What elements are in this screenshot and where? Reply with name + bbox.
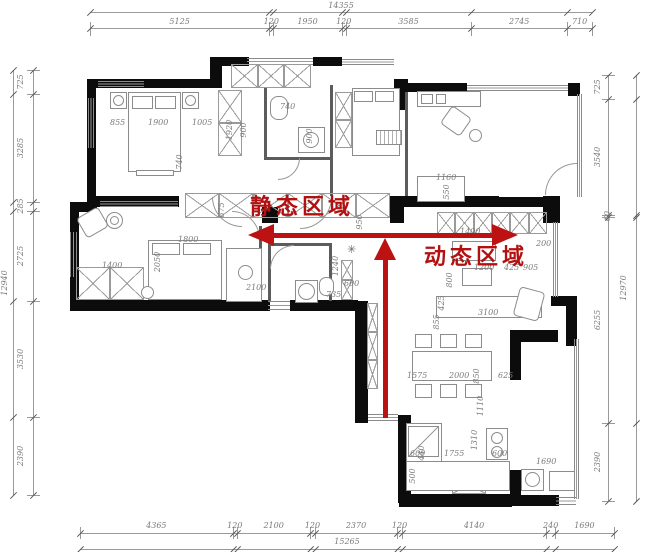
dim-slash bbox=[10, 492, 17, 499]
window-living-right bbox=[553, 222, 558, 297]
arrow-left-head bbox=[248, 224, 274, 246]
basin-bath2 bbox=[298, 283, 315, 300]
pillow bbox=[183, 243, 211, 255]
interior-dim: 440 bbox=[418, 445, 426, 460]
interior-dim: 1240 bbox=[332, 256, 340, 276]
dim-line bbox=[33, 70, 34, 495]
partition-bath2-top bbox=[268, 243, 332, 246]
interior-dim: 2100 bbox=[246, 284, 266, 292]
interior-dim: 855 bbox=[110, 119, 125, 127]
dynamic-zone-label: 动态区域 bbox=[424, 245, 528, 269]
dim-label: 2390 bbox=[594, 452, 602, 472]
chair bbox=[440, 384, 457, 398]
floor-plan: ✳ 51251201950120358527457101435543651202… bbox=[0, 0, 650, 552]
dim-label: 725 bbox=[594, 79, 602, 94]
dim-label: 285 bbox=[17, 199, 25, 214]
wardrobe-br3 bbox=[76, 267, 144, 300]
interior-dim: 735 bbox=[326, 291, 341, 299]
dim-line bbox=[80, 533, 614, 534]
dim-label: 4365 bbox=[146, 522, 166, 530]
dim-label: 1950 bbox=[297, 18, 317, 26]
door-arc bbox=[545, 163, 577, 195]
pillow bbox=[132, 96, 153, 109]
arrow-right-head bbox=[492, 224, 518, 246]
bench-br1 bbox=[136, 170, 174, 176]
interior-dim: 1920 bbox=[226, 120, 234, 140]
wall-bottom-right bbox=[510, 495, 559, 506]
shelf-br2 bbox=[335, 92, 352, 148]
dim-label: 3285 bbox=[17, 138, 25, 158]
wall-dining-top-right bbox=[510, 330, 558, 342]
interior-dim: 500 bbox=[409, 468, 417, 483]
box bbox=[421, 94, 433, 104]
interior-dim: 740 bbox=[176, 154, 184, 169]
interior-dim: 550 bbox=[443, 184, 451, 199]
interior-dim: 1400 bbox=[102, 262, 122, 270]
interior-dim: 900 bbox=[306, 128, 314, 143]
interior-dim: 2000 bbox=[449, 372, 469, 380]
window-study-top bbox=[467, 85, 568, 91]
cabinet-top bbox=[231, 64, 311, 88]
interior-dim: 1900 bbox=[148, 119, 168, 127]
dim-label: 3540 bbox=[594, 147, 602, 167]
partition-br2-left bbox=[330, 85, 333, 196]
dim-label: 3530 bbox=[17, 348, 25, 368]
sliding-door-br1 bbox=[100, 201, 178, 207]
lamp bbox=[113, 95, 124, 106]
arrow-up-head bbox=[374, 238, 396, 260]
window-study-right bbox=[577, 94, 582, 197]
interior-dim: 1005 bbox=[192, 119, 212, 127]
interior-dim: 800 bbox=[446, 272, 454, 287]
dim-label: 710 bbox=[572, 18, 587, 26]
window-br2-top bbox=[342, 59, 394, 65]
bench-br2 bbox=[376, 130, 402, 145]
interior-dim: 1160 bbox=[436, 174, 456, 182]
partition-bath2-left bbox=[268, 246, 271, 301]
dim-label: 1690 bbox=[574, 522, 594, 530]
interior-dim: 200 bbox=[536, 240, 551, 248]
cabinet-hall bbox=[367, 303, 378, 389]
dim-slash bbox=[589, 9, 596, 16]
cup bbox=[110, 216, 119, 225]
vertical-arrow-shaft bbox=[383, 256, 388, 418]
partition-bath1-left bbox=[264, 88, 267, 160]
balcony-cabinet bbox=[549, 471, 575, 491]
interior-dim: 600 bbox=[344, 280, 359, 288]
static-zone-label: 静态区域 bbox=[250, 195, 354, 219]
window-bath2-bottom bbox=[268, 301, 290, 310]
wall-living-top-right bbox=[497, 197, 545, 207]
interior-dim: 1310 bbox=[471, 430, 479, 450]
interior-dim: 675 bbox=[218, 202, 226, 217]
dim-line bbox=[636, 75, 637, 501]
dim-label: 2100 bbox=[263, 522, 283, 530]
dim-line bbox=[13, 70, 14, 495]
chair bbox=[440, 334, 457, 348]
interior-dim: 600 bbox=[492, 450, 507, 458]
interior-dim: 1755 bbox=[444, 450, 464, 458]
dim-total: 14355 bbox=[328, 2, 353, 10]
dim-total: 15265 bbox=[334, 538, 359, 546]
interior-dim: 855 bbox=[433, 314, 441, 329]
interior-dim: 2050 bbox=[154, 252, 162, 272]
dim-label: 2370 bbox=[346, 522, 366, 530]
armchair-study bbox=[440, 105, 472, 137]
dim-label: 2725 bbox=[17, 246, 25, 266]
chair bbox=[465, 334, 482, 348]
partition-study-left bbox=[405, 92, 408, 196]
stool-br3 bbox=[141, 286, 154, 299]
pillow bbox=[155, 96, 176, 109]
interior-dim: 950 bbox=[356, 214, 364, 229]
interior-dim: 740 bbox=[280, 103, 295, 111]
lamp bbox=[185, 95, 196, 106]
door-arc bbox=[270, 245, 294, 269]
dim-label: 2390 bbox=[17, 446, 25, 466]
interior-dim: 3100 bbox=[478, 309, 498, 317]
side-table-study bbox=[469, 129, 482, 142]
window-br1-left bbox=[88, 98, 94, 148]
chair bbox=[415, 384, 432, 398]
sink-basin bbox=[491, 432, 503, 444]
pillow bbox=[375, 91, 394, 102]
dim-total: 12970 bbox=[620, 275, 628, 300]
interior-dim: 1800 bbox=[178, 236, 198, 244]
dim-label: 240 bbox=[543, 522, 558, 530]
dim-label: 2745 bbox=[509, 18, 529, 26]
interior-dim: 850 bbox=[473, 368, 481, 383]
box bbox=[436, 94, 446, 104]
dim-total: 12940 bbox=[1, 270, 9, 295]
window-br1-top bbox=[98, 81, 144, 87]
wall-column-corridor bbox=[390, 196, 404, 223]
interior-dim: 1575 bbox=[407, 372, 427, 380]
chair-br3 bbox=[238, 265, 253, 280]
dim-label: 5125 bbox=[169, 18, 189, 26]
pillow bbox=[354, 91, 373, 102]
shower-icon: ✳ bbox=[347, 245, 356, 256]
window-balcony-bottom bbox=[556, 497, 576, 505]
interior-dim: 900 bbox=[240, 122, 248, 137]
interior-dim: 425 bbox=[438, 295, 446, 310]
interior-dim: 625 bbox=[498, 372, 513, 380]
dim-label: 3585 bbox=[398, 18, 418, 26]
washer-drum bbox=[525, 472, 540, 487]
chair bbox=[415, 334, 432, 348]
dim-slash bbox=[633, 498, 640, 505]
counter-bottom bbox=[406, 461, 510, 491]
interior-dim: 1690 bbox=[536, 458, 556, 466]
wall-kitchen-right bbox=[510, 470, 521, 497]
dim-label: 6255 bbox=[594, 310, 602, 330]
door-arc bbox=[278, 158, 300, 180]
wall-top-3 bbox=[313, 57, 342, 66]
dim-line bbox=[80, 549, 614, 550]
dim-label: 725 bbox=[17, 74, 25, 89]
dim-label: 4140 bbox=[464, 522, 484, 530]
dim-line bbox=[608, 75, 609, 501]
wall-kitchen-bottom bbox=[399, 494, 512, 507]
interior-dim: 1110 bbox=[477, 396, 485, 416]
